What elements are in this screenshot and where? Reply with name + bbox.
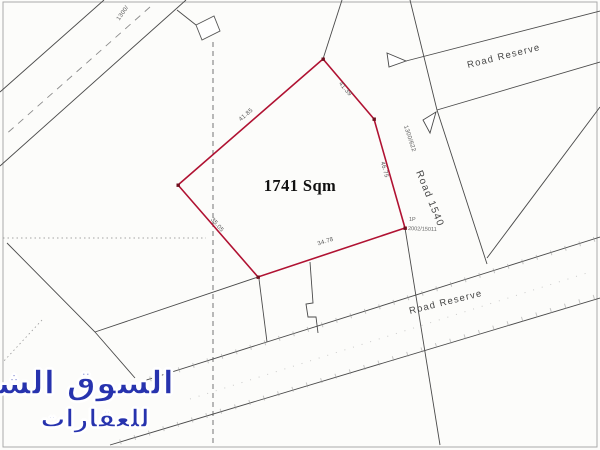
plot-area-label: 1741 Sqm — [264, 176, 336, 195]
road-edge — [0, 0, 186, 166]
parcel-line — [95, 277, 258, 332]
road-edge — [437, 62, 600, 110]
dimension-label-sw: 35.05 — [209, 217, 225, 234]
road-edge — [410, 0, 487, 264]
corner-fillet — [387, 53, 406, 67]
parcel-line — [7, 243, 135, 378]
top-left-road — [0, 0, 220, 166]
parcel-line-notched — [306, 262, 318, 333]
parcel-line — [177, 10, 196, 25]
survey-map-page: 1741 Sqm 41.85 41.39 46.75 34.78 35.05 1… — [0, 0, 600, 450]
plot-vertex — [177, 184, 180, 187]
road-reserve-bottom-label: Road Reserve — [408, 288, 484, 317]
road-1540-ref: 1300/622 — [402, 125, 416, 153]
road-edge — [0, 0, 104, 92]
corner-point-ref: 2002/15011 — [408, 226, 437, 233]
road-reserve-top-label: Road Reserve — [466, 42, 542, 71]
dotted-line — [3, 320, 42, 362]
watermark-line1: السوق الشامل — [14, 366, 174, 399]
road-reserve-bottom — [110, 237, 600, 445]
watermark-line2: للعقارات — [40, 406, 150, 431]
building-footprint — [196, 16, 220, 40]
plot-outline-group — [177, 58, 407, 279]
dimension-label-east: 46.75 — [379, 161, 389, 179]
road-1540 — [387, 0, 600, 264]
road-edge — [110, 298, 600, 445]
corner-fillet — [423, 112, 436, 133]
parcel-line — [405, 228, 440, 445]
parcel-line — [259, 279, 267, 342]
plot-vertex — [322, 58, 325, 61]
parcel-line — [487, 107, 600, 258]
top-left-road-ref: 1300/ — [116, 5, 130, 22]
corner-point-label: 1P — [409, 217, 416, 223]
road-1540-label: Road 1540 — [413, 169, 446, 229]
plot-vertex — [257, 276, 260, 279]
dimension-label-south: 34.78 — [317, 237, 335, 248]
road-edge — [140, 237, 600, 382]
dimension-label-ne: 41.39 — [337, 81, 352, 98]
road-median-dashes — [4, 7, 150, 136]
plot-vertex — [373, 118, 376, 121]
plot-outline — [178, 59, 405, 277]
parcel-line — [323, 0, 342, 59]
survey-dots — [190, 272, 590, 399]
plot-vertex — [404, 227, 407, 230]
